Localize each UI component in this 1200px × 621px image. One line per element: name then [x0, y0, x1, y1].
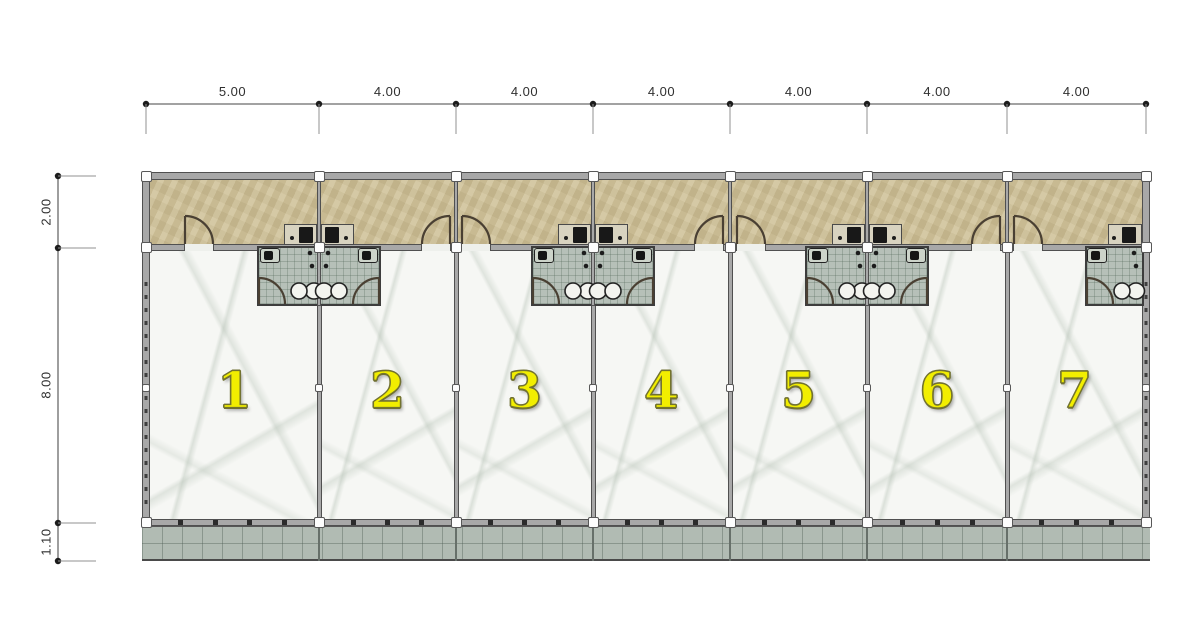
drain-dot-icon — [600, 251, 605, 256]
tap-dot-icon — [564, 236, 568, 240]
wall-node-marker — [1142, 384, 1150, 392]
left-dimension-label: 2.00 — [39, 198, 54, 225]
column-marker — [725, 171, 736, 182]
drain-dot-icon — [326, 251, 331, 256]
column-marker — [314, 517, 325, 528]
door-swing-icon — [422, 216, 450, 244]
unit-number-label: 5 — [781, 361, 816, 420]
drain-dot-icon — [858, 264, 863, 269]
column-marker — [588, 517, 599, 528]
drain-dot-icon — [308, 251, 313, 256]
column-marker — [314, 171, 325, 182]
column-marker — [725, 242, 736, 253]
bath-door-swing-icon — [807, 278, 833, 304]
column-marker — [1002, 171, 1013, 182]
column-marker — [451, 517, 462, 528]
top-dimension-label: 4.00 — [923, 84, 950, 99]
unit-number-label: 6 — [920, 361, 955, 420]
toilet-icon — [605, 283, 621, 299]
column-marker — [141, 171, 152, 182]
toilet-icon — [291, 283, 307, 299]
left-dimension-label: 8.00 — [39, 371, 54, 398]
linework-overlay — [0, 0, 1200, 621]
unit-number-label: 1 — [217, 361, 252, 420]
column-marker — [314, 242, 325, 253]
toilet-icon — [864, 283, 881, 299]
column-marker — [1141, 171, 1152, 182]
bath-door-swing-icon — [901, 278, 927, 304]
wall-node-marker — [1003, 384, 1011, 392]
wall-node-marker — [863, 384, 871, 392]
tap-dot-icon — [344, 236, 348, 240]
drain-dot-icon — [582, 251, 587, 256]
column-marker — [725, 517, 736, 528]
column-marker — [1002, 242, 1013, 253]
toilet-icon — [590, 283, 607, 299]
column-marker — [862, 517, 873, 528]
wall-node-marker — [142, 384, 150, 392]
drain-dot-icon — [584, 264, 589, 269]
top-dimension-label: 4.00 — [374, 84, 401, 99]
tap-dot-icon — [1112, 236, 1116, 240]
unit-number-label: 4 — [644, 361, 679, 420]
bath-door-swing-icon — [353, 278, 379, 304]
column-marker — [588, 171, 599, 182]
column-marker — [451, 171, 462, 182]
tap-dot-icon — [838, 236, 842, 240]
wall-node-marker — [315, 384, 323, 392]
toilet-icon — [839, 283, 855, 299]
tap-dot-icon — [892, 236, 896, 240]
drain-dot-icon — [872, 264, 877, 269]
tap-dot-icon — [618, 236, 622, 240]
drain-dot-icon — [598, 264, 603, 269]
bath-door-swing-icon — [259, 278, 285, 304]
column-marker — [1141, 517, 1152, 528]
drain-dot-icon — [1134, 264, 1139, 269]
unit-number-label: 7 — [1057, 361, 1092, 420]
top-dimension-label: 4.00 — [648, 84, 675, 99]
bath-door-swing-icon — [1087, 278, 1113, 304]
drain-dot-icon — [856, 251, 861, 256]
tap-dot-icon — [290, 236, 294, 240]
column-marker — [1141, 242, 1152, 253]
unit-number-label: 3 — [507, 361, 542, 420]
wall-node-marker — [452, 384, 460, 392]
drain-dot-icon — [324, 264, 329, 269]
left-dimension-label: 1.10 — [39, 528, 54, 555]
column-marker — [451, 242, 462, 253]
top-dimension-label: 4.00 — [785, 84, 812, 99]
toilet-icon — [316, 283, 333, 299]
door-swing-icon — [185, 216, 213, 244]
drain-dot-icon — [874, 251, 879, 256]
wall-node-marker — [726, 384, 734, 392]
column-marker — [862, 171, 873, 182]
drain-dot-icon — [1132, 251, 1137, 256]
floor-plan-canvas: 5.004.004.004.004.004.004.002.008.001.10… — [0, 0, 1200, 621]
column-marker — [141, 242, 152, 253]
door-swing-icon — [1014, 216, 1042, 244]
toilet-icon — [565, 283, 581, 299]
top-dimension-label: 4.00 — [1063, 84, 1090, 99]
column-marker — [862, 242, 873, 253]
unit-number-label: 2 — [370, 361, 405, 420]
column-marker — [141, 517, 152, 528]
column-marker — [588, 242, 599, 253]
door-swing-icon — [695, 216, 723, 244]
top-dimension-label: 4.00 — [511, 84, 538, 99]
toilet-icon — [879, 283, 895, 299]
toilet-icon — [1114, 283, 1130, 299]
bath-door-swing-icon — [533, 278, 559, 304]
drain-dot-icon — [310, 264, 315, 269]
door-swing-icon — [737, 216, 765, 244]
bath-door-swing-icon — [627, 278, 653, 304]
wall-node-marker — [589, 384, 597, 392]
door-swing-icon — [972, 216, 1000, 244]
top-dimension-label: 5.00 — [219, 84, 246, 99]
door-swing-icon — [462, 216, 490, 244]
toilet-icon — [331, 283, 347, 299]
column-marker — [1002, 517, 1013, 528]
